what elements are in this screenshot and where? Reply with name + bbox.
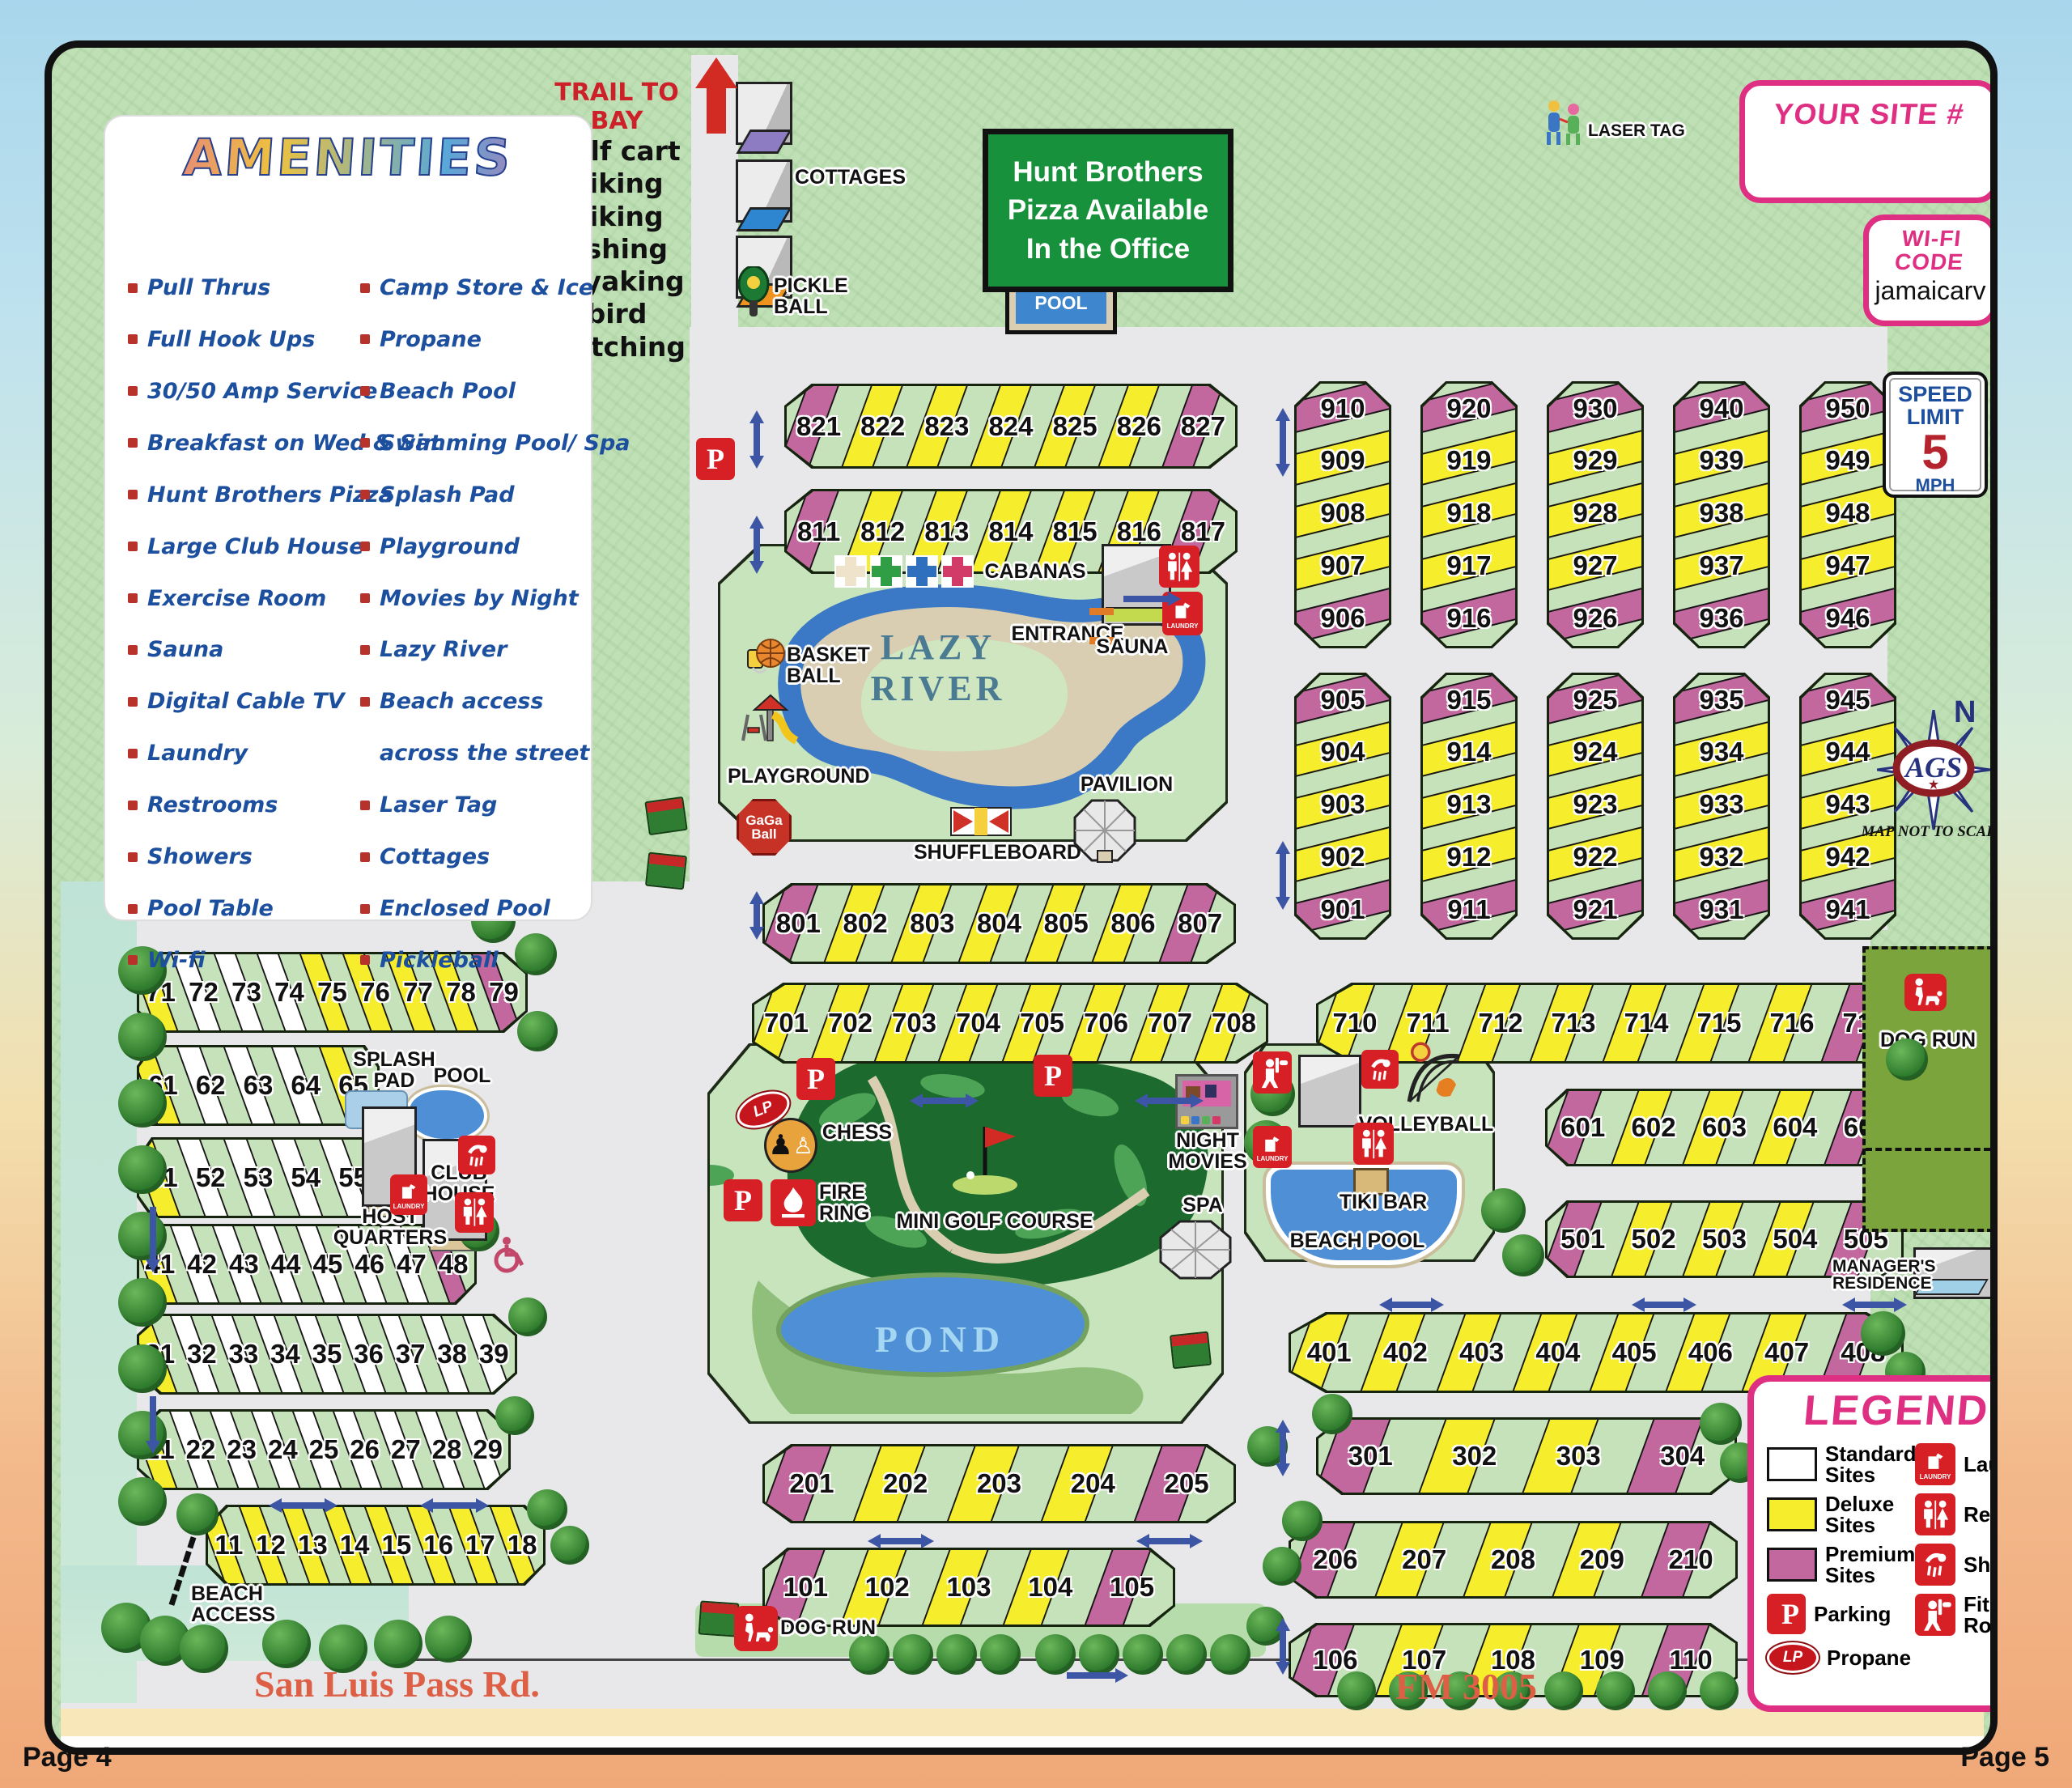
tree-icon [527, 1489, 567, 1530]
site-number-827: 827 [1171, 386, 1235, 466]
managers-residence-label: MANAGER'S RESIDENCE [1832, 1258, 1954, 1293]
amenity-item: Camp Store & Ice [360, 275, 631, 300]
site-number-708: 708 [1202, 985, 1266, 1061]
site-number-15: 15 [376, 1507, 418, 1583]
scale-note: MAP NOT TO SCALE [1861, 823, 1998, 841]
site-number-207: 207 [1380, 1523, 1469, 1596]
sauna-label: SAUNA [1080, 637, 1185, 658]
site-number-804: 804 [966, 886, 1033, 962]
spa-icon [1159, 1220, 1232, 1280]
restrooms-icon [455, 1192, 494, 1233]
laser-tag-icon [1539, 98, 1588, 148]
dumpster-icon [1170, 1331, 1212, 1370]
volleyball-icon [1405, 1042, 1462, 1105]
tree-icon [118, 1079, 167, 1128]
beach-strip [61, 1709, 1984, 1736]
site-number-702: 702 [818, 985, 882, 1061]
your-site-label: YOUR SITE # [1743, 97, 1994, 131]
site-number-28: 28 [427, 1412, 468, 1488]
site-number-901: 901 [1297, 894, 1389, 925]
site-number-920: 920 [1423, 393, 1515, 424]
site-number-932: 932 [1675, 842, 1768, 873]
legend-left-column: Standard SitesDeluxe SitesPremium SitesP… [1754, 1435, 1915, 1673]
legend-swatch-standard [1767, 1447, 1817, 1481]
tree-icon [550, 1526, 589, 1565]
direction-arrow-icon [1842, 1294, 1907, 1315]
site-number-303: 303 [1526, 1420, 1631, 1493]
showers-icon [458, 1136, 495, 1174]
laundry-icon: LAUNDRY [390, 1174, 427, 1215]
tree-icon [1282, 1501, 1323, 1541]
site-number-923: 923 [1549, 789, 1641, 820]
site-number-13: 13 [292, 1507, 334, 1583]
tree-icon [118, 1477, 167, 1526]
legend-item: Deluxe Sites [1767, 1493, 1915, 1535]
site-number-908: 908 [1297, 498, 1389, 529]
site-number-826: 826 [1107, 386, 1171, 466]
direction-arrow-icon [142, 1385, 163, 1454]
tree-icon [1166, 1634, 1207, 1675]
legend-item-label: Propane [1827, 1647, 1911, 1668]
legend-right-column: LAUNDRYLaundryRestroomsShowersFitness Ro… [1915, 1435, 1998, 1673]
site-number-822: 822 [851, 386, 915, 466]
site-number-902: 902 [1297, 842, 1389, 873]
gaga-ball-label: GaGa Ball [745, 813, 782, 841]
mini-golf-label: MINI GOLF COURSE [877, 1212, 1112, 1233]
amenity-item: across the street [360, 741, 631, 766]
site-number-939: 939 [1675, 445, 1768, 476]
site-number-14: 14 [333, 1507, 376, 1583]
site-pod-905-901: 905904903902901 [1294, 673, 1391, 940]
amenity-item: Propane [360, 327, 631, 352]
site-number-43: 43 [223, 1226, 265, 1302]
site-number-907: 907 [1297, 550, 1389, 581]
site-number-927: 927 [1549, 550, 1641, 581]
site-number-947: 947 [1802, 550, 1894, 581]
dog-walk-icon [734, 1606, 778, 1651]
club-pool-icon [406, 1087, 487, 1142]
site-row-801-807: 801802803804805806807 [762, 883, 1236, 964]
direction-arrow-icon [1135, 1090, 1204, 1111]
playground-icon [740, 694, 805, 760]
site-number-104: 104 [1009, 1550, 1091, 1624]
handicap-icon [490, 1236, 526, 1275]
site-number-24: 24 [262, 1412, 304, 1488]
site-number-930: 930 [1549, 393, 1641, 424]
cabanas-label: CABANAS [979, 562, 1092, 583]
amenity-item: Beach Pool [360, 379, 631, 404]
site-number-802: 802 [832, 886, 899, 962]
entrance-gate-icon [1089, 608, 1114, 615]
legend-item: Restrooms [1915, 1493, 1998, 1535]
site-number-33: 33 [223, 1316, 265, 1392]
legend-item-label: Deluxe Sites [1825, 1493, 1915, 1535]
tree-icon [425, 1616, 472, 1663]
tree-icon [1648, 1671, 1687, 1710]
site-number-823: 823 [915, 386, 979, 466]
tree-icon [1210, 1634, 1250, 1675]
site-number-402: 402 [1367, 1314, 1443, 1391]
site-number-821: 821 [787, 386, 851, 466]
site-number-54: 54 [282, 1140, 329, 1216]
site-number-803: 803 [898, 886, 966, 962]
site-row-601-605: 601602603604605 [1545, 1089, 1904, 1166]
site-number-942: 942 [1802, 842, 1894, 873]
shuffleboard-icon [950, 807, 1012, 836]
beach-pool-label: BEACH POOL [1289, 1231, 1426, 1252]
cabana-icon [941, 555, 974, 588]
spa-label: SPA [1162, 1196, 1243, 1217]
site-number-504: 504 [1760, 1203, 1830, 1276]
site-number-915: 915 [1423, 685, 1515, 716]
site-number-703: 703 [882, 985, 946, 1061]
amenity-item: Swimming Pool/ Spa [360, 431, 631, 456]
site-row-301-304: 301302303304 [1316, 1417, 1737, 1495]
site-row-21-29: 212223242526272829 [137, 1409, 511, 1490]
laser-tag-label: LASER TAG [1588, 122, 1693, 139]
tree-icon [1502, 1234, 1544, 1276]
chess-icon: ♟♙ [764, 1118, 817, 1173]
tree-icon [495, 1396, 534, 1435]
site-number-931: 931 [1675, 894, 1768, 925]
fm-3005-label: FM 3005 [1395, 1665, 1537, 1708]
legend-item-label: Showers [1964, 1554, 1998, 1575]
tree-icon [118, 1145, 167, 1194]
svg-text:POND: POND [875, 1319, 1006, 1360]
tree-icon [118, 1013, 167, 1061]
tree-icon [1263, 1547, 1301, 1586]
amenity-item: Movies by Night [360, 586, 631, 611]
amenities-list-right: Camp Store & IcePropaneBeach PoolSwimmin… [360, 275, 631, 973]
amenity-item: Playground [360, 534, 631, 559]
tree-icon [1337, 1671, 1376, 1710]
site-number-921: 921 [1549, 894, 1641, 925]
host-quarters-label: HOST QUARTERS [325, 1207, 455, 1248]
site-number-911: 911 [1423, 894, 1515, 925]
legend-item-label: Fitness Room [1964, 1594, 1998, 1636]
lazy-river-label: LAZY RIVER [849, 626, 1027, 709]
direction-arrow-icon [746, 410, 767, 469]
site-number-404: 404 [1520, 1314, 1596, 1391]
direction-arrow-icon [1136, 1531, 1203, 1552]
basketball-icon [746, 637, 788, 682]
legend-item: Showers [1915, 1544, 1998, 1586]
cottage-icon [736, 82, 792, 145]
speed-limit-unit: MPH [1886, 475, 1985, 496]
legend-item: Standard Sites [1767, 1443, 1915, 1485]
tree-icon [374, 1620, 422, 1668]
direction-arrow-icon [1112, 588, 1181, 609]
site-row-31-39: 313233343536373839 [137, 1314, 517, 1395]
amenity-item: Splash Pad [360, 482, 631, 508]
wifi-code: jamaicarv [1869, 276, 1992, 306]
trail-up-arrow-icon [695, 57, 737, 135]
amenity-item: Lazy River [360, 637, 631, 662]
tree-icon [1481, 1188, 1526, 1233]
wifi-box: WI-FI CODE jamaicarv [1863, 214, 1998, 326]
tree-icon [508, 1297, 547, 1336]
legend-swatch-premium [1767, 1548, 1817, 1582]
legend-item: LAUNDRYLaundry [1915, 1443, 1998, 1485]
site-number-801: 801 [765, 886, 832, 962]
site-number-712: 712 [1464, 985, 1537, 1061]
speed-limit-sign: SPEED LIMIT 5 MPH [1883, 372, 1988, 498]
site-number-824: 824 [979, 386, 1042, 466]
legend-item: PParking [1767, 1594, 1915, 1634]
svg-text:AGS: AGS [1904, 751, 1962, 784]
site-number-42: 42 [181, 1226, 223, 1302]
resort-map: AMENITIES Pull ThrusFull Hook Ups30/50 A… [45, 40, 1998, 1755]
site-number-950: 950 [1802, 393, 1894, 424]
site-number-44: 44 [265, 1226, 307, 1302]
site-number-52: 52 [187, 1140, 235, 1216]
site-number-209: 209 [1557, 1523, 1646, 1596]
legend-restrooms-icon [1915, 1493, 1955, 1535]
tiki-bar-label: TIKI BAR [1331, 1192, 1436, 1213]
tree-icon [1312, 1394, 1352, 1434]
restrooms-icon [1353, 1123, 1394, 1165]
dog-run-label: DOG RUN [1866, 1030, 1990, 1051]
basketball-label: BASKET BALL [787, 645, 876, 686]
site-number-502: 502 [1618, 1203, 1688, 1276]
tree-icon [1861, 1311, 1905, 1356]
site-number-705: 705 [1010, 985, 1074, 1061]
site-number-23: 23 [221, 1412, 262, 1488]
legend-item: Fitness Room [1915, 1594, 1998, 1636]
site-number-937: 937 [1675, 550, 1768, 581]
site-number-706: 706 [1074, 985, 1138, 1061]
fitness-icon [1253, 1051, 1292, 1094]
site-number-922: 922 [1549, 842, 1641, 873]
tree-icon [1700, 1403, 1742, 1445]
direction-arrow-icon [1272, 408, 1293, 477]
site-number-941: 941 [1802, 894, 1894, 925]
playground-label: PLAYGROUND [728, 767, 865, 788]
site-number-935: 935 [1675, 685, 1768, 716]
site-number-202: 202 [859, 1446, 953, 1521]
site-number-909: 909 [1297, 445, 1389, 476]
direction-arrow-icon [420, 1495, 489, 1516]
site-number-36: 36 [348, 1316, 390, 1392]
site-number-34: 34 [265, 1316, 307, 1392]
tree-icon [893, 1634, 933, 1675]
site-number-35: 35 [306, 1316, 348, 1392]
site-pod-925-921: 925924923922921 [1547, 673, 1644, 940]
site-pod-910-906: 910909908907906 [1294, 381, 1391, 648]
site-number-903: 903 [1297, 789, 1389, 820]
tree-icon [1700, 1671, 1739, 1710]
tree-icon [1886, 1038, 1928, 1081]
site-number-946: 946 [1802, 603, 1894, 634]
site-number-26: 26 [344, 1412, 385, 1488]
site-row-710-717: 710711712713714715716717 [1316, 983, 1904, 1064]
north-label: N [1954, 695, 1976, 730]
legend-showers-icon [1915, 1544, 1955, 1586]
restrooms-icon [1159, 546, 1199, 588]
site-row-101-105: 101102103104105 [762, 1548, 1175, 1627]
tree-icon [849, 1634, 890, 1675]
site-row-51-55: 5152535455 [137, 1137, 380, 1218]
pavilion-label: PAVILION [1070, 775, 1183, 796]
direction-arrow-icon [1055, 1665, 1128, 1686]
pool-label: POOL [418, 1066, 507, 1087]
site-number-210: 210 [1646, 1523, 1735, 1596]
parking-icon: P [696, 438, 735, 480]
direction-arrow-icon [269, 1495, 338, 1516]
site-number-912: 912 [1423, 842, 1515, 873]
site-number-701: 701 [754, 985, 818, 1061]
legend-item: Premium Sites [1767, 1544, 1915, 1586]
site-number-914: 914 [1423, 737, 1515, 767]
legend-item-label: Standard Sites [1825, 1443, 1917, 1485]
site-number-928: 928 [1549, 498, 1641, 529]
site-number-37: 37 [389, 1316, 431, 1392]
speed-limit-value: 5 [1886, 429, 1985, 475]
pizza-sign: Hunt Brothers Pizza Available In the Off… [983, 129, 1233, 292]
site-pod-935-931: 935934933932931 [1673, 673, 1770, 940]
legend-propane-icon: LP [1767, 1642, 1819, 1673]
bottom-strip [61, 1736, 1984, 1748]
site-number-103: 103 [928, 1550, 1010, 1624]
dumpster-icon [645, 852, 687, 890]
dog-run-divider [1866, 1148, 1990, 1151]
site-number-12: 12 [250, 1507, 292, 1583]
site-number-405: 405 [1596, 1314, 1672, 1391]
site-number-716: 716 [1756, 985, 1828, 1061]
site-pod-950-946: 950949948947946 [1799, 381, 1896, 648]
amenity-item: Beach access [360, 689, 631, 714]
site-number-714: 714 [1610, 985, 1683, 1061]
direction-arrow-icon [746, 891, 767, 940]
site-number-926: 926 [1549, 603, 1641, 634]
speed-limit-title: SPEED LIMIT [1886, 383, 1985, 429]
amenity-item: Pickleball [360, 948, 631, 973]
your-site-box: YOUR SITE # [1739, 80, 1998, 203]
site-number-938: 938 [1675, 498, 1768, 529]
site-number-916: 916 [1423, 603, 1515, 634]
tree-icon [176, 1493, 219, 1535]
site-number-925: 925 [1549, 685, 1641, 716]
fire-ring-icon [771, 1179, 816, 1226]
amenity-item: Enclosed Pool [360, 896, 631, 921]
san-luis-pass-rd-label: San Luis Pass Rd. [254, 1663, 540, 1705]
site-number-63: 63 [235, 1047, 282, 1123]
tree-icon [118, 1278, 167, 1327]
laundry-icon: LAUNDRY [1253, 1126, 1292, 1168]
site-number-936: 936 [1675, 603, 1768, 634]
site-number-707: 707 [1138, 985, 1202, 1061]
cottages-label: COTTAGES [795, 168, 900, 189]
legend-laundry-icon: LAUNDRY [1915, 1443, 1955, 1485]
site-number-917: 917 [1423, 550, 1515, 581]
site-number-933: 933 [1675, 789, 1768, 820]
site-number-501: 501 [1548, 1203, 1618, 1276]
legend-title: LEGEND [1751, 1387, 1998, 1435]
site-number-503: 503 [1689, 1203, 1760, 1276]
site-number-713: 713 [1537, 985, 1610, 1061]
direction-arrow-icon [1379, 1294, 1444, 1315]
legend-item-label: Restrooms [1964, 1504, 1998, 1525]
direction-arrow-icon [746, 516, 767, 574]
pavilion-icon [1073, 799, 1136, 864]
site-number-704: 704 [946, 985, 1010, 1061]
pickleball-label: PICKLE BALL [774, 276, 871, 317]
site-number-918: 918 [1423, 498, 1515, 529]
dumpster-icon [644, 796, 687, 835]
site-pod-920-916: 920919918917916 [1420, 381, 1518, 648]
site-number-302: 302 [1423, 1420, 1527, 1493]
legend-item-label: Laundry [1964, 1454, 1998, 1475]
site-number-38: 38 [431, 1316, 473, 1392]
legend-item-label: Parking [1814, 1603, 1891, 1624]
dog-run-area: DOG RUN [1862, 946, 1993, 1232]
tree-icon [517, 1011, 558, 1051]
site-number-208: 208 [1469, 1523, 1558, 1596]
cabana-icon [906, 555, 938, 588]
site-number-949: 949 [1802, 445, 1894, 476]
site-number-805: 805 [1033, 886, 1100, 962]
site-number-53: 53 [235, 1140, 282, 1216]
dog-walk-icon [1904, 974, 1947, 1011]
page-number-left: Page 4 [23, 1742, 112, 1773]
parking-icon: P [796, 1058, 835, 1100]
site-number-102: 102 [847, 1550, 928, 1624]
site-number-203: 203 [953, 1446, 1047, 1521]
dumpster-icon [698, 1600, 740, 1637]
site-number-905: 905 [1297, 685, 1389, 716]
parking-icon: P [1034, 1055, 1072, 1097]
amenities-panel: AMENITIES Pull ThrusFull Hook Ups30/50 A… [105, 117, 591, 919]
site-number-715: 715 [1683, 985, 1756, 1061]
legend-swatch-deluxe [1767, 1497, 1817, 1531]
site-number-913: 913 [1423, 789, 1515, 820]
beach-access-label: BEACH ACCESS [191, 1584, 304, 1625]
site-number-39: 39 [473, 1316, 515, 1392]
site-number-807: 807 [1166, 886, 1233, 962]
tree-icon [1123, 1634, 1163, 1675]
cabana-icon [870, 555, 902, 588]
site-number-105: 105 [1091, 1550, 1173, 1624]
wifi-title: WI-FI CODE [1866, 227, 1994, 274]
shuffleboard-label: SHUFFLEBOARD [914, 843, 1076, 864]
site-number-17: 17 [460, 1507, 502, 1583]
site-number-603: 603 [1689, 1091, 1760, 1164]
site-row-201-205: 201202203204205 [762, 1444, 1236, 1523]
tree-icon [262, 1620, 311, 1668]
site-number-32: 32 [181, 1316, 223, 1392]
site-number-948: 948 [1802, 498, 1894, 529]
pickleball-paddle-icon [736, 266, 773, 318]
site-pod-930-926: 930929928927926 [1547, 381, 1644, 648]
direction-arrow-icon [868, 1531, 934, 1552]
amenities-title: AMENITIES [103, 128, 592, 187]
site-number-940: 940 [1675, 393, 1768, 424]
amenity-item: Cottages [360, 844, 631, 869]
site-number-924: 924 [1549, 737, 1641, 767]
site-number-602: 602 [1618, 1091, 1688, 1164]
site-number-64: 64 [282, 1047, 329, 1123]
tree-icon [980, 1634, 1021, 1675]
legend-item: LPPropane [1767, 1642, 1915, 1673]
site-number-825: 825 [1043, 386, 1107, 466]
site-row-821-827: 821822823824825826827 [784, 384, 1238, 469]
site-number-919: 919 [1423, 445, 1515, 476]
site-row-11-18: 1112131415161718 [206, 1505, 546, 1586]
site-number-201: 201 [765, 1446, 859, 1521]
site-number-204: 204 [1046, 1446, 1140, 1521]
site-number-806: 806 [1100, 886, 1167, 962]
site-number-904: 904 [1297, 737, 1389, 767]
